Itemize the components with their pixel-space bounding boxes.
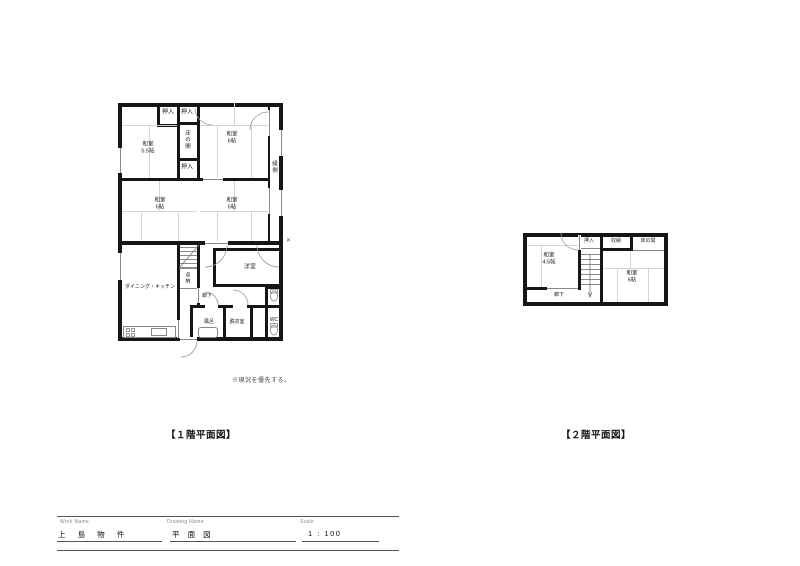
drawing-name-label: Drawing Name — [167, 519, 204, 525]
room-size: 4.5帖 — [542, 259, 555, 266]
room-label-washitsu-5-5: 和室 5.5帖 — [141, 141, 154, 154]
room-size: 6帖 — [154, 204, 165, 211]
floor1-caption: 【１階平面図】 — [115, 427, 287, 441]
room-label-engawa: 縁側 — [270, 161, 278, 174]
work-name-value: 上 島 物 件 — [58, 529, 129, 540]
room-label-washitsu-6: 和室 6帖 — [626, 270, 637, 283]
room-name: 和室 — [226, 131, 237, 138]
room-size: 6帖 — [626, 277, 637, 284]
room-label-closet: 押入 — [162, 109, 174, 116]
priority-note: ※現況を優先する。 — [232, 375, 291, 384]
title-block-underline — [57, 541, 162, 542]
door-swing-overlay — [115, 100, 287, 358]
room-size: 5.5帖 — [141, 148, 154, 155]
room-label-storage: 収納 — [185, 272, 192, 284]
room-label-dressing-room: 脱衣室 — [229, 319, 244, 325]
work-name-label: Work Name — [60, 519, 89, 525]
drawing-name-value: 平 面 図 — [172, 529, 214, 540]
room-label-wc: WC — [270, 317, 278, 323]
room-name: 和室 — [542, 252, 555, 259]
floor1-plan: 押入 押入 床の間 押入 和室 5.5帖 和室 6帖 縁側 和室 6帖 和室 6… — [115, 100, 287, 358]
room-label-western-room: 洋室 — [244, 264, 256, 271]
room-label-tokonoma: 床の間 — [640, 238, 655, 244]
room-name: 和室 — [226, 197, 237, 204]
room-name: 和室 — [626, 270, 637, 277]
title-block-underline — [302, 541, 379, 542]
title-block-rule — [57, 516, 399, 517]
room-label-washitsu-6-midright: 和室 6帖 — [226, 197, 237, 210]
room-name: 和室 — [154, 197, 165, 204]
room-label-closet: 押入 — [181, 164, 193, 171]
room-label-closet: 押入 — [584, 238, 594, 244]
room-label-dining-kitchen: ダイニング・キッチン — [125, 284, 175, 290]
title-block-underline — [170, 541, 296, 542]
drawing-sheet: 押入 押入 床の間 押入 和室 5.5帖 和室 6帖 縁側 和室 6帖 和室 6… — [0, 0, 800, 566]
reference-mark: ✕ — [286, 237, 291, 244]
title-block-rule — [57, 550, 399, 551]
scale-value: 1 : 100 — [308, 529, 341, 538]
room-label-tokonoma: 床の間 — [183, 130, 191, 150]
room-label-closet: 押入 — [181, 109, 193, 116]
room-label-storage: 収納 — [611, 238, 621, 244]
room-name: 和室 — [141, 141, 154, 148]
room-label-hallway: 廊下 — [554, 292, 564, 298]
room-label-hallway: 廊下 — [202, 293, 212, 299]
room-size: 6帖 — [226, 204, 237, 211]
scale-label: Scale — [300, 519, 314, 525]
room-size: 6帖 — [226, 138, 237, 145]
floor2-plan: 押入 収納 床の間 和室 4.5帖 和室 6帖 廊下 — [520, 230, 672, 310]
room-label-washitsu-6-top: 和室 6帖 — [226, 131, 237, 144]
floor2-caption: 【２階平面図】 — [520, 427, 672, 441]
room-label-bath: 風呂 — [204, 319, 214, 325]
room-label-washitsu-4-5: 和室 4.5帖 — [542, 252, 555, 265]
room-label-washitsu-6-midleft: 和室 6帖 — [154, 197, 165, 210]
